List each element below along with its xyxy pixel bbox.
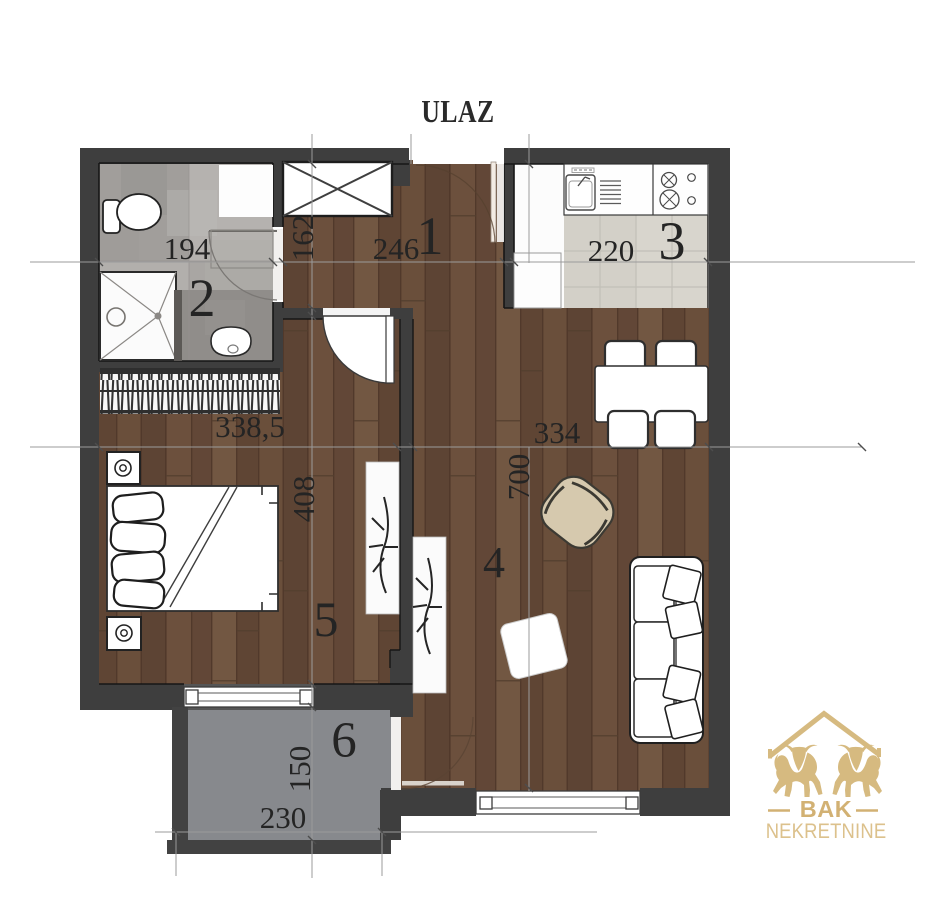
svg-text:338,5: 338,5	[215, 409, 285, 444]
svg-text:ULAZ: ULAZ	[421, 94, 494, 129]
svg-text:194: 194	[164, 231, 211, 266]
svg-text:162: 162	[285, 215, 320, 262]
svg-text:230: 230	[260, 800, 307, 835]
svg-text:6: 6	[331, 713, 357, 769]
svg-text:BAK: BAK	[800, 796, 852, 822]
svg-text:1: 1	[417, 206, 444, 266]
svg-text:5: 5	[314, 591, 339, 647]
svg-text:150: 150	[282, 746, 317, 793]
svg-text:246: 246	[373, 231, 420, 266]
svg-text:NEKRETNINE: NEKRETNINE	[766, 820, 887, 844]
svg-text:4: 4	[483, 538, 505, 587]
svg-text:220: 220	[588, 233, 635, 268]
svg-text:2: 2	[189, 268, 216, 328]
svg-text:3: 3	[659, 211, 686, 271]
svg-text:334: 334	[534, 415, 581, 450]
svg-text:700: 700	[501, 454, 536, 501]
svg-text:408: 408	[286, 476, 321, 523]
